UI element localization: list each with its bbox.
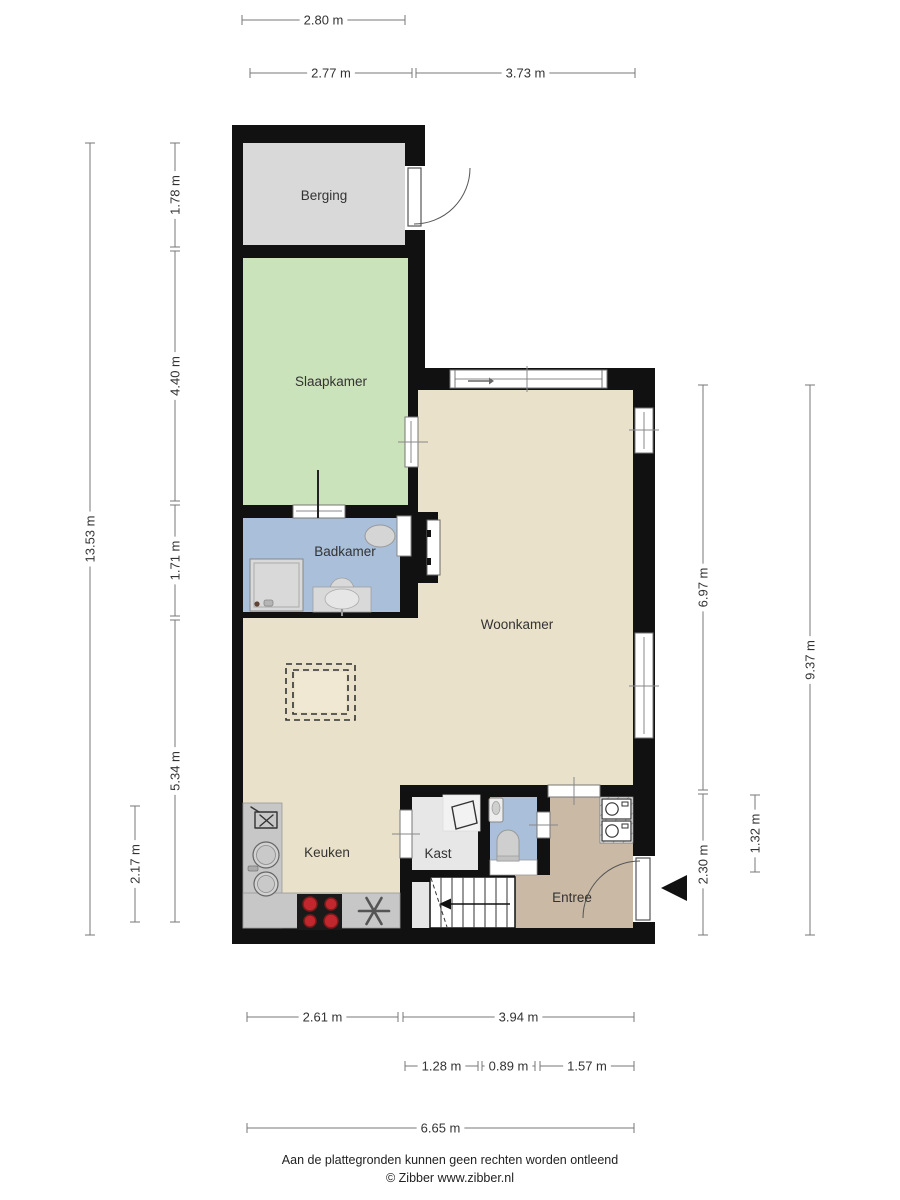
dim-bottom-157: 1.57 m [540,1058,634,1075]
void-skylight [286,664,355,720]
label-woonkamer: Woonkamer [481,617,554,632]
dim-label: 4.40 m [168,356,183,396]
dim-label: 6.65 m [421,1121,461,1136]
dim-left-440: 4.40 m [167,251,184,501]
dim-right-937: 9.37 m [802,385,819,935]
wc-toilet-icon [497,830,519,861]
dim-bottom-089: 0.89 m [482,1058,535,1075]
dim-label: 1.32 m [748,814,763,854]
dim-bottom-394: 3.94 m [403,1009,634,1026]
footer-disclaimer: Aan de plattegronden kunnen geen rechten… [282,1153,618,1167]
dim-top-277: 2.77 m [250,65,412,82]
dim-bottom-261: 2.61 m [247,1009,398,1026]
dim-label: 1.78 m [168,175,183,215]
dim-label: 1.71 m [168,541,183,581]
dim-label: 2.80 m [304,13,344,28]
dim-left-178: 1.78 m [167,143,184,247]
label-kast: Kast [424,846,451,861]
room-kast-floor-lower [412,882,430,928]
dim-label: 2.17 m [128,844,143,884]
dim-left-171: 1.71 m [167,505,184,616]
wc-sink-icon [489,798,503,822]
floorplan-page: Berging Slaapkamer Badkamer Woonkamer Ke… [0,0,900,1200]
dim-label: 6.97 m [696,568,711,608]
dim-label: 1.57 m [567,1059,607,1074]
berging-door [405,166,470,230]
dim-right-230: 2.30 m [695,794,712,935]
dim-left-534: 5.34 m [167,620,184,922]
laundry-basket-icon [443,795,480,831]
window-woonkamer-top [450,366,607,392]
dim-label: 1.28 m [422,1059,462,1074]
shower-icon [250,559,303,611]
dryer-icon [602,821,631,841]
floorplan-svg: Berging Slaapkamer Badkamer Woonkamer Ke… [0,0,900,1200]
label-badkamer: Badkamer [314,544,376,559]
dim-label: 9.37 m [803,640,818,680]
dim-label: 2.77 m [311,66,351,81]
dim-bottom-665: 6.65 m [247,1120,634,1137]
chimney-shaft [416,512,440,583]
dim-label: 0.89 m [489,1059,529,1074]
dim-right-697: 6.97 m [695,385,712,790]
dim-label: 13.53 m [83,516,98,563]
stairs [430,877,515,928]
dim-top-280: 2.80 m [242,12,405,29]
dim-label: 3.94 m [499,1010,539,1025]
dim-left-1353: 13.53 m [82,143,99,935]
label-slaapkamer: Slaapkamer [295,374,368,389]
dim-label: 3.73 m [506,66,546,81]
wc-door-threshold [490,860,537,875]
dim-label: 2.61 m [303,1010,343,1025]
entree-shelf [600,797,633,843]
label-keuken: Keuken [304,845,350,860]
washer-icon [602,799,631,819]
dim-bottom-128: 1.28 m [405,1058,478,1075]
label-berging: Berging [301,188,348,203]
label-entree: Entree [552,890,592,905]
dim-left-217: 2.17 m [127,806,144,922]
entrance-arrow-icon [661,875,687,901]
dim-right-132: 1.32 m [747,795,764,872]
dim-top-373: 3.73 m [416,65,635,82]
cooktop-icon [297,894,342,930]
dim-label: 5.34 m [168,751,183,791]
dim-label: 2.30 m [696,845,711,885]
footer-credit: © Zibber www.zibber.nl [386,1171,514,1185]
